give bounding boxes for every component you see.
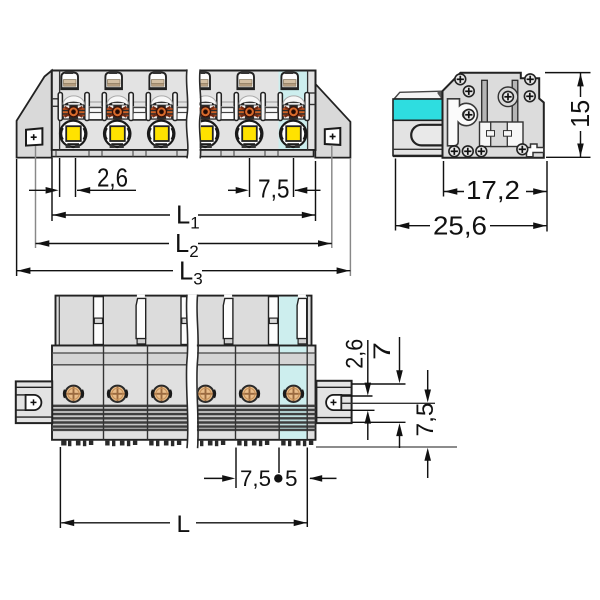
svg-text:7,5: 7,5 xyxy=(412,403,439,437)
svg-text:7,5: 7,5 xyxy=(258,176,290,204)
svg-text:2,6: 2,6 xyxy=(342,339,369,369)
svg-text:25,6: 25,6 xyxy=(433,213,487,241)
svg-text:15: 15 xyxy=(567,100,595,128)
svg-text:7: 7 xyxy=(369,342,396,360)
svg-text:17,2: 17,2 xyxy=(466,177,520,205)
svg-text:7,5: 7,5 xyxy=(240,466,271,491)
svg-text:5: 5 xyxy=(285,466,298,491)
svg-text:2,6: 2,6 xyxy=(97,165,128,193)
svg-text:L: L xyxy=(177,511,191,538)
